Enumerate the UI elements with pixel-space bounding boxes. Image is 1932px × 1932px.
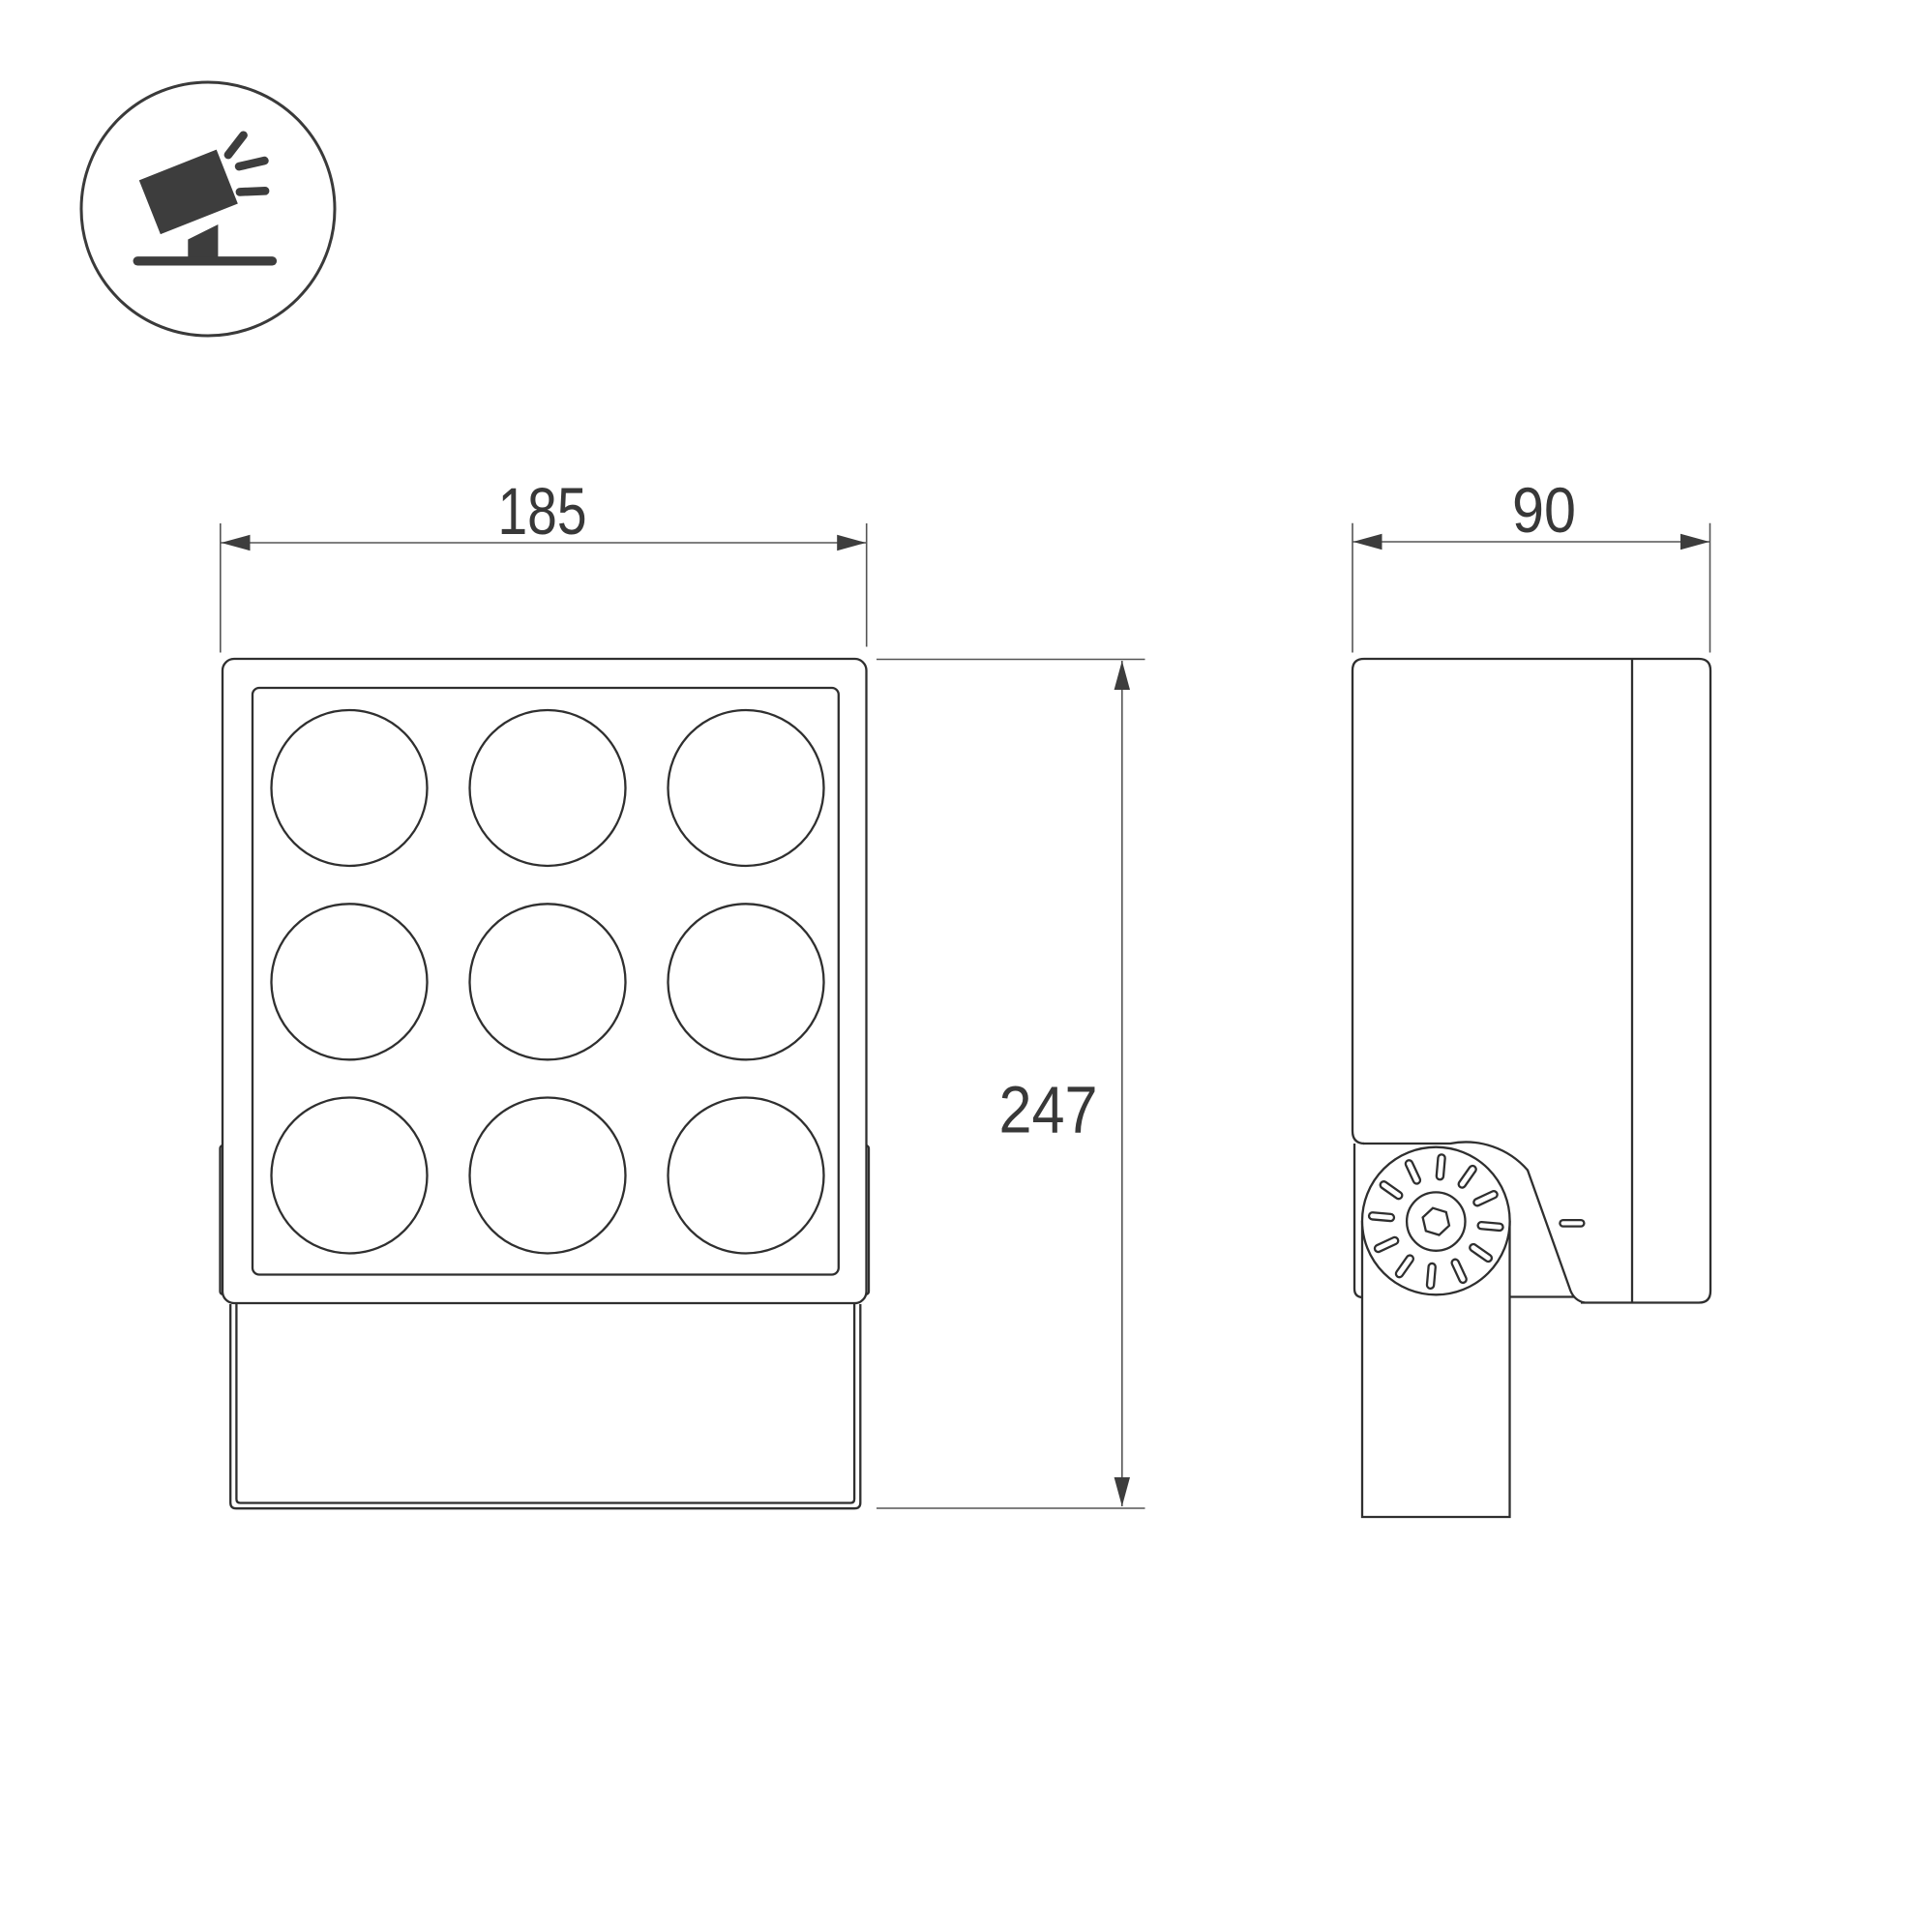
svg-text:90: 90 bbox=[1512, 474, 1576, 546]
svg-text:185: 185 bbox=[498, 474, 587, 549]
svg-text:247: 247 bbox=[999, 1073, 1098, 1147]
